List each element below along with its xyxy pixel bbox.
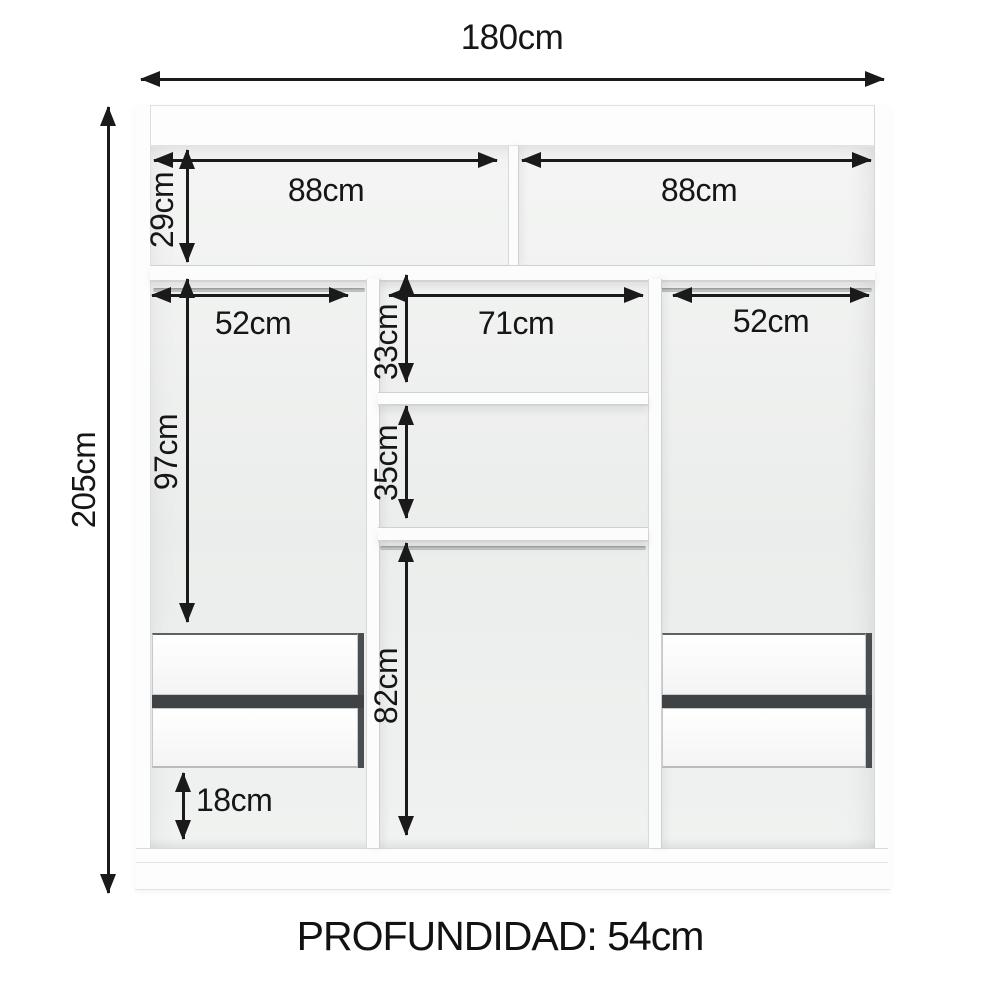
arrowhead-right-icon [852,152,872,168]
left-drawer-bottom [152,708,358,768]
arrowhead-right-icon [850,287,870,303]
right-drawer-unit [662,633,872,768]
right-drawer-bottom [662,708,866,768]
arrowhead-right-icon [478,152,498,168]
dim-arrow-bottom-gap-height [182,773,185,839]
arrowhead-down-icon [175,820,191,840]
right-drawer-top [662,633,866,695]
dim-label-center-hanging-height: 82cm [366,616,406,756]
dim-label-top-right-width: 88cm [629,170,769,210]
dim-label-center-shelf-height: 35cm [366,393,406,533]
dim-label-center-upper-height: 33cm [366,272,406,412]
top-center-divider [508,146,519,266]
right-column-divider [648,279,662,848]
top-shelf [150,265,875,282]
right-drawer-gap [662,695,872,708]
left-drawer-top [152,633,358,695]
center-shelf-upper [378,392,648,406]
dim-arrow-left-hanging-height [186,279,189,622]
wardrobe-top-panel [136,106,888,147]
arrowhead-right-icon [624,287,644,303]
arrowhead-down-icon [398,816,414,836]
left-drawer-gap [152,695,364,708]
base-seam-line [136,862,888,863]
left-drawer-unit [152,633,364,768]
center-hanging-rod [380,546,646,550]
dim-label-bottom-gap-height: 18cm [196,780,326,820]
arrowhead-right-icon [329,287,349,303]
arrowhead-down-icon [179,603,195,623]
dim-arrow-top-left-width [154,159,497,162]
center-shelf-lower [378,527,648,542]
wardrobe-right-wall [874,105,890,889]
wardrobe-dimension-diagram: 180cm 205cm [0,0,1000,1000]
dim-arrow-top-right-width [522,159,871,162]
arrowhead-left-icon [672,287,692,303]
arrowhead-up-icon [175,772,191,792]
arrowhead-up-icon [179,278,195,298]
dim-arrow-center-column-width [389,294,643,297]
arrowhead-left-icon [151,287,171,303]
depth-note: PROFUNDIDAD: 54cm [280,910,720,962]
arrowhead-up-icon [398,542,414,562]
arrowhead-left-icon [521,152,541,168]
dim-arrow-right-column-width [673,294,869,297]
dim-label-top-left-width: 88cm [256,170,396,210]
dim-label-right-column-width: 52cm [701,301,841,341]
wardrobe-base-panel [136,848,888,889]
dim-label-center-column-width: 71cm [446,303,586,343]
floor-shadow [150,838,875,848]
dim-label-left-hanging-height: 97cm [146,382,186,522]
dim-label-left-column-width: 52cm [183,303,323,343]
right-hanging-rod [661,288,872,292]
dim-arrow-top-height [186,150,189,262]
dim-label-top-height: 29cm [142,140,182,280]
